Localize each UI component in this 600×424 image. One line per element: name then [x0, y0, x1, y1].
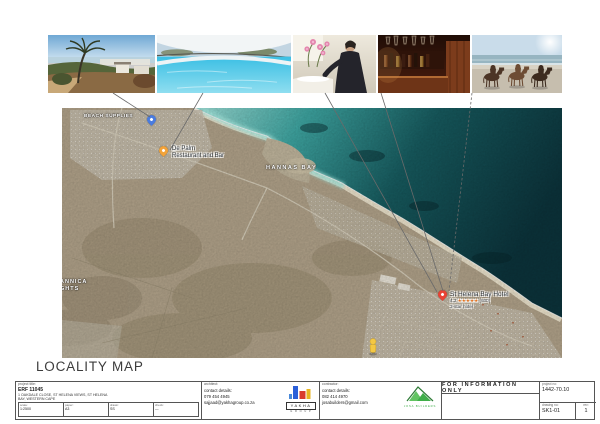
- drawing-no-row: drawing no: SK1-01 rev: 1: [540, 402, 596, 419]
- photo-hotel-exterior: [48, 35, 155, 93]
- hotel-poi-label: St Helena Bay Hotel 4,2 ★★★★★ (600) 3-st…: [450, 291, 509, 309]
- title-block: project title: ERF 11045 1 OAKDALE CLOSE…: [15, 381, 595, 420]
- photo-spa-treatment: [293, 35, 376, 93]
- locality-map-sheet: BEACH SUPPLIES HANNAS BAY ANNICA GHTS De…: [0, 0, 600, 424]
- page-title: LOCALITY MAP: [36, 359, 144, 374]
- map-label-hannas-bay: HANNAS BAY: [266, 165, 317, 171]
- project-no: 1442-70.10: [540, 387, 596, 393]
- photo-hotel-bar: [378, 35, 470, 93]
- restaurant-name-line2: Restaurant and Bar: [172, 153, 224, 160]
- check-value: —: [155, 407, 197, 412]
- map-label-store: BEACH SUPPLIES: [84, 114, 133, 119]
- yakha-logo-subtext: G R O U P: [286, 410, 316, 413]
- hotel-stars-icon: ★★★★★: [458, 298, 479, 303]
- title-block-status-cell: FOR INFORMATION ONLY: [441, 382, 539, 419]
- satellite-map: BEACH SUPPLIES HANNAS BAY ANNICA GHTS De…: [62, 108, 562, 358]
- photo-swimming-pool: [157, 35, 291, 93]
- restaurant-name-line1: De Palm: [172, 146, 224, 153]
- title-block-contractor-cell: contractor: contact details: 082 414 497…: [319, 382, 441, 419]
- scale-value: 1:2500: [20, 407, 62, 412]
- pegman-icon: [368, 338, 378, 356]
- josa-house-icon: [405, 385, 435, 403]
- title-block-project-cell: project title: ERF 11045 1 OAKDALE CLOSE…: [16, 382, 201, 419]
- yakha-logo-text: YAKHA: [286, 402, 316, 410]
- hotel-category: 3-star hotel: [450, 304, 509, 309]
- subtable-drawn: drawn: SS: [108, 403, 153, 416]
- hotel-rating: 4,2: [450, 298, 456, 303]
- drawn-value: SS: [110, 407, 152, 412]
- josa-builders-logo: JOSA BUILDERS: [403, 385, 437, 408]
- rev-value: 1: [576, 408, 596, 414]
- map-label-suburb: ANNICA GHTS: [62, 279, 87, 293]
- paper-value: A3: [65, 407, 107, 412]
- josa-logo-text: JOSA BUILDERS: [403, 404, 437, 408]
- subtable-check: check: —: [153, 403, 198, 416]
- map-label-suburb-line2: GHTS: [62, 286, 87, 293]
- subtable-scale: scale: 1:2500: [19, 403, 63, 416]
- title-block-numbers-cell: project no: 1442-70.10 drawing no: SK1-0…: [539, 382, 596, 419]
- restaurant-poi-label: De Palm Restaurant and Bar: [172, 146, 224, 160]
- title-block-architect-cell: architect: contact details: 079 454 4945…: [201, 382, 319, 419]
- photo-horse-riding: [472, 35, 562, 93]
- hotel-reviews: (600): [480, 298, 491, 303]
- for-information-only-banner: FOR INFORMATION ONLY: [442, 382, 539, 394]
- subtable-paper: paper: A3: [63, 403, 108, 416]
- yakha-buildings-icon: [286, 385, 316, 401]
- project-subtable: scale: 1:2500 paper: A3 drawn: SS check:…: [18, 402, 199, 417]
- satellite-imagery: [62, 108, 562, 358]
- yakha-logo: YAKHA G R O U P: [286, 385, 316, 413]
- drawing-no: SK1-01: [540, 408, 575, 414]
